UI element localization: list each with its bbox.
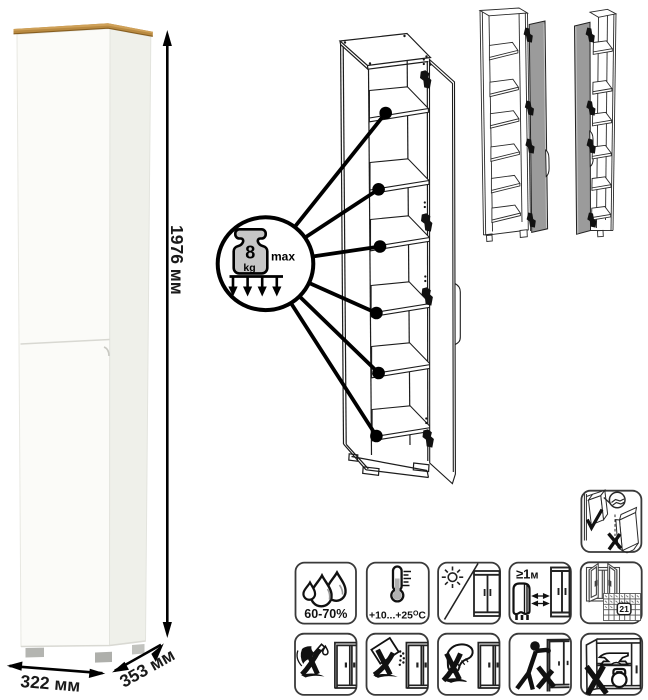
svg-text:kg: kg bbox=[243, 262, 255, 274]
svg-text:≥1м: ≥1м bbox=[516, 567, 539, 582]
svg-text:8: 8 bbox=[245, 243, 255, 263]
svg-text:322 мм: 322 мм bbox=[20, 671, 81, 696]
svg-text:21: 21 bbox=[619, 604, 629, 614]
svg-text:+10...+25OC: +10...+25OC bbox=[369, 610, 426, 621]
svg-text:max: max bbox=[271, 250, 295, 264]
svg-text:1976 мм: 1976 мм bbox=[167, 225, 187, 295]
svg-text:60-70%: 60-70% bbox=[304, 607, 347, 621]
